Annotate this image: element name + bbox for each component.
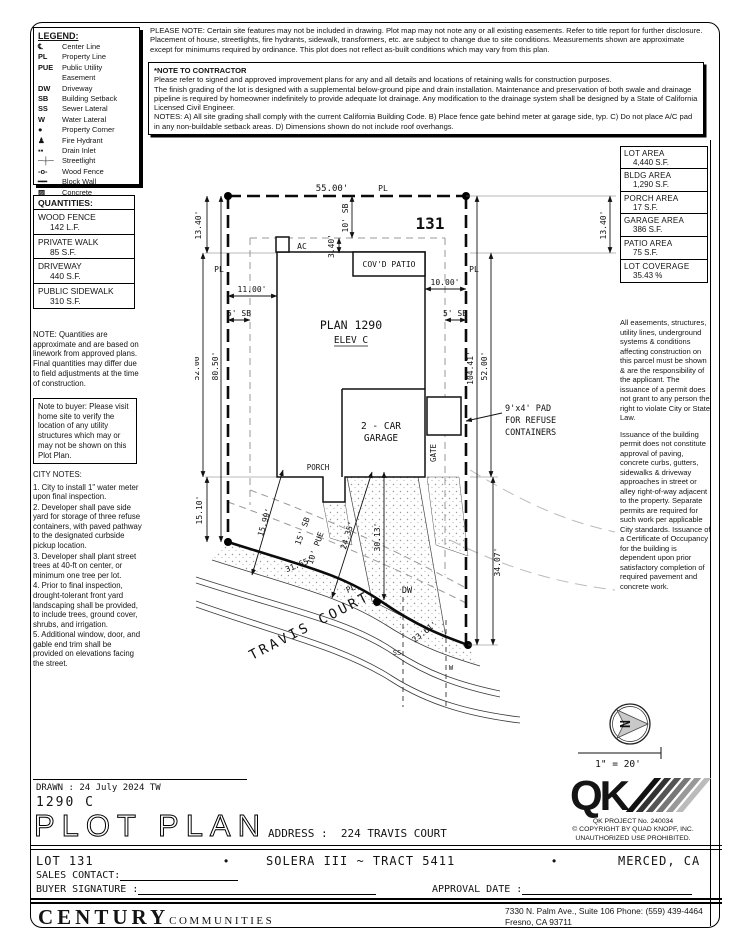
dim-top-width: 55.00' [316, 184, 349, 194]
garage-label-line1: 2 - CAR [361, 421, 401, 432]
buyer-signature-label: BUYER SIGNATURE : [36, 884, 138, 895]
city-notes: CITY NOTES: 1. City to install 1" water … [33, 470, 142, 670]
driveway-cell: DRIVEWAY440 S.F. [33, 258, 135, 284]
dim-left-mid: 52.00' [195, 352, 201, 381]
tract-label: SOLERA III ~ TRACT 5411 [266, 854, 455, 868]
sales-contact-field[interactable] [120, 870, 238, 881]
area-label: LOT AREA [624, 149, 704, 158]
legend-item: ─┼─Streetlight [38, 156, 135, 166]
plan-label: PLAN 1290 [320, 318, 382, 332]
dim-side-left: 11.00' [238, 285, 267, 294]
dim-rear-setback: 10' SB [341, 203, 350, 232]
site-plan-drawing: 55.00' 13.40' 52.00' 15.10' 80.50' 13.40… [195, 178, 665, 778]
legend-item: ♟Fire Hydrant [38, 136, 135, 146]
elevation-label: ELEV C [334, 335, 368, 346]
legend-item-label: Block Wall [62, 177, 96, 187]
street-name: TRAVIS COURT [247, 589, 373, 664]
dim-right-mid: 52.00' [480, 352, 489, 381]
dim-front3: 30.13' [373, 523, 382, 552]
address-value: 224 TRAVIS COURT [341, 827, 447, 840]
ac-unit-outline [276, 237, 289, 252]
dim-left-lower: 15.10' [195, 496, 204, 525]
water-lateral-label: W [449, 664, 454, 672]
centerline-icon: ℄ [38, 42, 62, 52]
legend-item: DWDriveway [38, 84, 135, 94]
brand-name: CENTURY [38, 905, 169, 929]
legend-item-label: Streetlight [62, 156, 95, 166]
legend-item-label: Building Setback [62, 94, 117, 104]
qk-copyright-block: QK PROJECT No. 240034 © COPYRIGHT BY QUA… [548, 818, 718, 843]
wood-fence-cell: WOOD FENCE142 L.F. [33, 209, 135, 235]
sheet-title: PLOT PLAN [34, 808, 267, 843]
sales-contact-label: SALES CONTACT: [36, 870, 120, 881]
label-front-setback: 15' SB [293, 516, 311, 546]
quantity-value: 440 S.F. [38, 271, 130, 281]
ac-label: AC [297, 242, 307, 251]
approval-date-field[interactable] [522, 884, 692, 895]
property-corner-icon: ● [38, 125, 62, 135]
streetlight-icon: ─┼─ [38, 156, 62, 166]
address-label: ADDRESS : [268, 827, 328, 840]
porch-label: PORCH [307, 463, 330, 472]
area-value: 4,440 S.F. [624, 158, 704, 167]
dim-right-total: 104.41' [466, 351, 475, 385]
buyer-signature-row: BUYER SIGNATURE : [36, 884, 376, 895]
legend-item-label: Driveway [62, 84, 92, 94]
separator-bullet: • [552, 854, 557, 868]
north-letter: N [616, 720, 631, 728]
qk-logo-block: QK QK PROJECT No. 240034 © COPYRIGHT BY … [548, 776, 718, 848]
legend-item: PLProperty Line [38, 52, 135, 62]
refuse-pad-note-line3: CONTAINERS [505, 428, 556, 438]
legend-item-label: Water Lateral [62, 115, 106, 125]
quantities-note: NOTE: Quantities are approximate and are… [33, 330, 139, 388]
legend-item: SSSewer Lateral [38, 104, 135, 114]
refuse-pad-note-line2: FOR REFUSE [505, 416, 556, 426]
legend-item: ▪▪Drain Inlet [38, 146, 135, 156]
legend-item: PUEPublic Utility Easement [38, 63, 135, 84]
city-label: MERCED, CA [618, 854, 700, 868]
quantities-title: QUANTITIES: [33, 195, 135, 211]
concrete-stipple [212, 477, 478, 665]
dim-side-right: 10.00' [431, 278, 460, 287]
driveway-abbreviation: DW [38, 84, 62, 94]
quantity-value: 85 S.F. [38, 247, 130, 257]
legend-box: LEGEND: ℄Center Line PLProperty Line PUE… [33, 27, 140, 185]
sheet-title-graphic: PLOT PLAN [30, 806, 280, 846]
qk-logo-stripes [640, 778, 710, 814]
sewer-lateral-label: SS [393, 649, 401, 657]
driveway-label: DW [402, 586, 413, 596]
address-row: ADDRESS : 224 TRAVIS COURT [268, 827, 447, 840]
dim-left-upper: 13.40' [195, 211, 203, 240]
buyer-signature-field[interactable] [138, 884, 376, 895]
street-curves [196, 560, 520, 723]
city-note-item: 2. Developer shall pave side yard for st… [33, 503, 142, 551]
quantity-label: DRIVEWAY [38, 261, 130, 271]
drawn-by-line: DRAWN : 24 July 2024 TW [36, 783, 161, 793]
dim-right-lower: 34.07' [493, 548, 502, 577]
builder-address-line2: Fresno, CA 93711 [505, 917, 703, 928]
city-note-item: 3. Developer shall plant street trees at… [33, 552, 142, 581]
covered-patio-label: COV'D PATIO [363, 260, 416, 269]
lot-area-cell: LOT AREA4,440 S.F. [620, 146, 708, 170]
brand-subname: COMMUNITIES [169, 915, 274, 927]
legend-item: ℄Center Line [38, 42, 135, 52]
property-line-icon: PL [38, 52, 62, 62]
quantity-label: PRIVATE WALK [38, 237, 130, 247]
private-walk-cell: PRIVATE WALK85 S.F. [33, 234, 135, 260]
revision-divider [33, 779, 247, 780]
fire-hydrant-icon: ♟ [38, 136, 62, 146]
approval-date-label: APPROVAL DATE : [432, 884, 522, 895]
refuse-pad-note-line1: 9'x4' PAD [505, 404, 551, 414]
builder-address: 7330 N. Palm Ave., Suite 106 Phone: (559… [505, 906, 703, 928]
water-abbreviation: W [38, 115, 62, 125]
drainage-swale-lines [450, 470, 615, 590]
property-line-label: PL [214, 265, 224, 274]
refuse-pad-outline [427, 397, 461, 435]
dim-sb5-left: 5' SB [227, 309, 251, 318]
dim-right-upper: 13.40' [599, 211, 608, 240]
city-notes-title: CITY NOTES: [33, 470, 142, 480]
separator-bullet: • [224, 854, 229, 868]
dim-left-total: 80.50' [211, 352, 220, 381]
legend-item: -o-Wood Fence [38, 167, 135, 177]
contractor-note-paragraph: Please refer to signed and approved impr… [154, 75, 698, 84]
sales-contact-row: SALES CONTACT: [36, 870, 238, 881]
gate-label: GATE [429, 443, 438, 462]
city-note-item: 5. Additional window, door, and gable en… [33, 630, 142, 668]
public-sidewalk-cell: PUBLIC SIDEWALK310 S.F. [33, 283, 135, 309]
contractor-note-paragraph: NOTES: A) All site grading shall comply … [154, 112, 698, 131]
legend-item: SBBuilding Setback [38, 94, 135, 104]
lot-label: LOT 131 [36, 854, 94, 868]
legend-item-label: Center Line [62, 42, 100, 52]
please-note-text: PLEASE NOTE: Certain site features may n… [150, 26, 706, 54]
garage-label-line2: GARAGE [364, 433, 399, 444]
thick-rule [30, 898, 722, 904]
legend-title: LEGEND: [38, 31, 135, 41]
qk-copyright: © COPYRIGHT BY QUAD KNOPF, INC. [548, 826, 718, 834]
block-wall-icon: ━━ [38, 177, 62, 187]
legend-item-label: Property Corner [62, 125, 115, 135]
legend-item-label: Drain Inlet [62, 146, 96, 156]
century-communities-logo: CENTURYCOMMUNITIES [38, 905, 274, 930]
legend-item-label: Fire Hydrant [62, 136, 103, 146]
legend-item: ●Property Corner [38, 125, 135, 135]
sewer-abbreviation: SS [38, 104, 62, 114]
note-to-contractor-box: *NOTE TO CONTRACTOR Please refer to sign… [148, 62, 704, 135]
quantities-table: QUANTITIES: WOOD FENCE142 L.F. PRIVATE W… [33, 196, 135, 309]
legend-item-label: Property Line [62, 52, 106, 62]
drain-inlet-icon: ▪▪ [38, 146, 62, 156]
lot-number: 131 [416, 214, 445, 233]
builder-address-line1: 7330 N. Palm Ave., Suite 106 Phone: (559… [505, 906, 703, 917]
qk-notice: UNAUTHORIZED USE PROHIBITED. [548, 835, 718, 843]
qk-logo: QK [570, 772, 627, 820]
label-pue: 10' PUE [306, 531, 326, 566]
property-line-label: PL [378, 184, 388, 193]
legend-item-label: Public Utility Easement [62, 63, 135, 84]
pue-abbreviation: PUE [38, 63, 62, 84]
quantity-value: 310 S.F. [38, 296, 130, 306]
north-arrow: N [610, 704, 650, 744]
contractor-note-title: *NOTE TO CONTRACTOR [154, 66, 698, 75]
legend-item-label: Sewer Lateral [62, 104, 108, 114]
scale-label: 1" = 20' [595, 759, 641, 770]
quantity-label: PUBLIC SIDEWALK [38, 286, 130, 296]
note-to-buyer-box: Note to buyer: Please visit home site to… [33, 398, 137, 464]
dim-ac-offset: 3.40' [327, 234, 336, 258]
wood-fence-icon: -o- [38, 167, 62, 177]
contractor-note-paragraph: The finish grading of the lot is designe… [154, 85, 698, 113]
legend-item: WWater Lateral [38, 115, 135, 125]
quantity-label: WOOD FENCE [38, 212, 130, 222]
city-note-item: 4. Prior to final inspection, drought-to… [33, 581, 142, 629]
scale-bar [578, 747, 661, 759]
legend-item-label: Wood Fence [62, 167, 104, 177]
approval-date-row: APPROVAL DATE : [432, 884, 692, 895]
quantity-value: 142 L.F. [38, 222, 130, 232]
dim-front1: 15.99' [256, 507, 273, 537]
city-note-item: 1. City to install 1" water meter upon f… [33, 483, 142, 502]
setback-abbreviation: SB [38, 94, 62, 104]
legend-item: ━━Block Wall [38, 177, 135, 187]
property-line-label: PL [469, 265, 479, 274]
dim-sb5-right: 5' SB [443, 309, 467, 318]
